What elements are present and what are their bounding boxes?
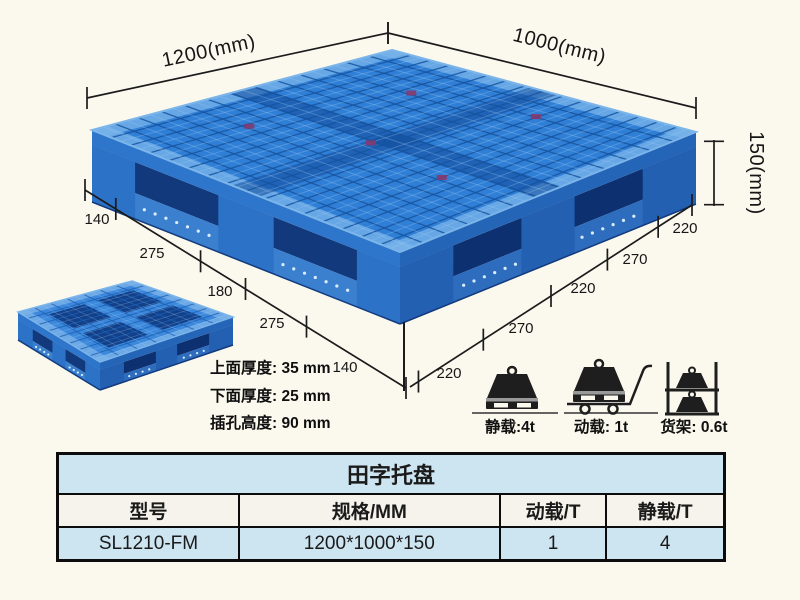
- static-load-label: 静载:4t: [485, 417, 535, 436]
- left-dim-label-2: 180: [207, 283, 232, 300]
- cell-dynamic-load: 1: [500, 527, 607, 561]
- static-load-icon: [472, 367, 558, 413]
- product-sheet: 1200(mm) 1000(mm) 150(mm) 140 275 180 27…: [0, 0, 800, 600]
- right-dim-label-4: 220: [672, 220, 697, 237]
- col-header-static-load: 静载/T: [606, 494, 724, 527]
- rack-load-label: 货架: 0.6t: [660, 417, 727, 436]
- right-dim-label-1: 270: [508, 320, 533, 337]
- left-dim-label-0: 140: [84, 211, 109, 228]
- left-dim-label-1: 275: [139, 245, 164, 262]
- cell-model: SL1210-FM: [58, 527, 239, 561]
- col-header-size: 规格/MM: [239, 494, 500, 527]
- thickness-notes: 上面厚度: 35 mm 下面厚度: 25 mm 插孔高度: 90 mm: [210, 355, 380, 438]
- dim-label-depth: 1000(mm): [511, 24, 609, 68]
- dim-label-width: 1200(mm): [160, 30, 258, 71]
- spec-table: 田字托盘 型号 规格/MM 动载/T 静载/T SL1210-FM 1200*1…: [56, 452, 726, 562]
- cell-static-load: 4: [606, 527, 724, 561]
- dynamic-load-icon: [564, 360, 658, 414]
- thickness-note-top: 上面厚度: 35 mm: [210, 355, 380, 383]
- col-header-dynamic-load: 动载/T: [500, 494, 607, 527]
- thickness-note-fork: 插孔高度: 90 mm: [210, 410, 380, 438]
- right-dim-label-0: 220: [436, 365, 461, 382]
- table-row: SL1210-FM 1200*1000*150 1 4: [58, 527, 725, 561]
- dynamic-load-label: 动载: 1t: [574, 418, 628, 436]
- col-header-model: 型号: [58, 494, 239, 527]
- cell-size: 1200*1000*150: [239, 527, 500, 561]
- right-dim-label-2: 220: [570, 280, 595, 297]
- dim-label-height: 150(mm): [745, 131, 767, 215]
- thickness-note-bottom: 下面厚度: 25 mm: [210, 383, 380, 411]
- table-title: 田字托盘: [58, 454, 725, 495]
- left-dim-label-3: 275: [259, 315, 284, 332]
- right-dim-label-3: 270: [622, 251, 647, 268]
- rack-load-icon: [665, 362, 719, 415]
